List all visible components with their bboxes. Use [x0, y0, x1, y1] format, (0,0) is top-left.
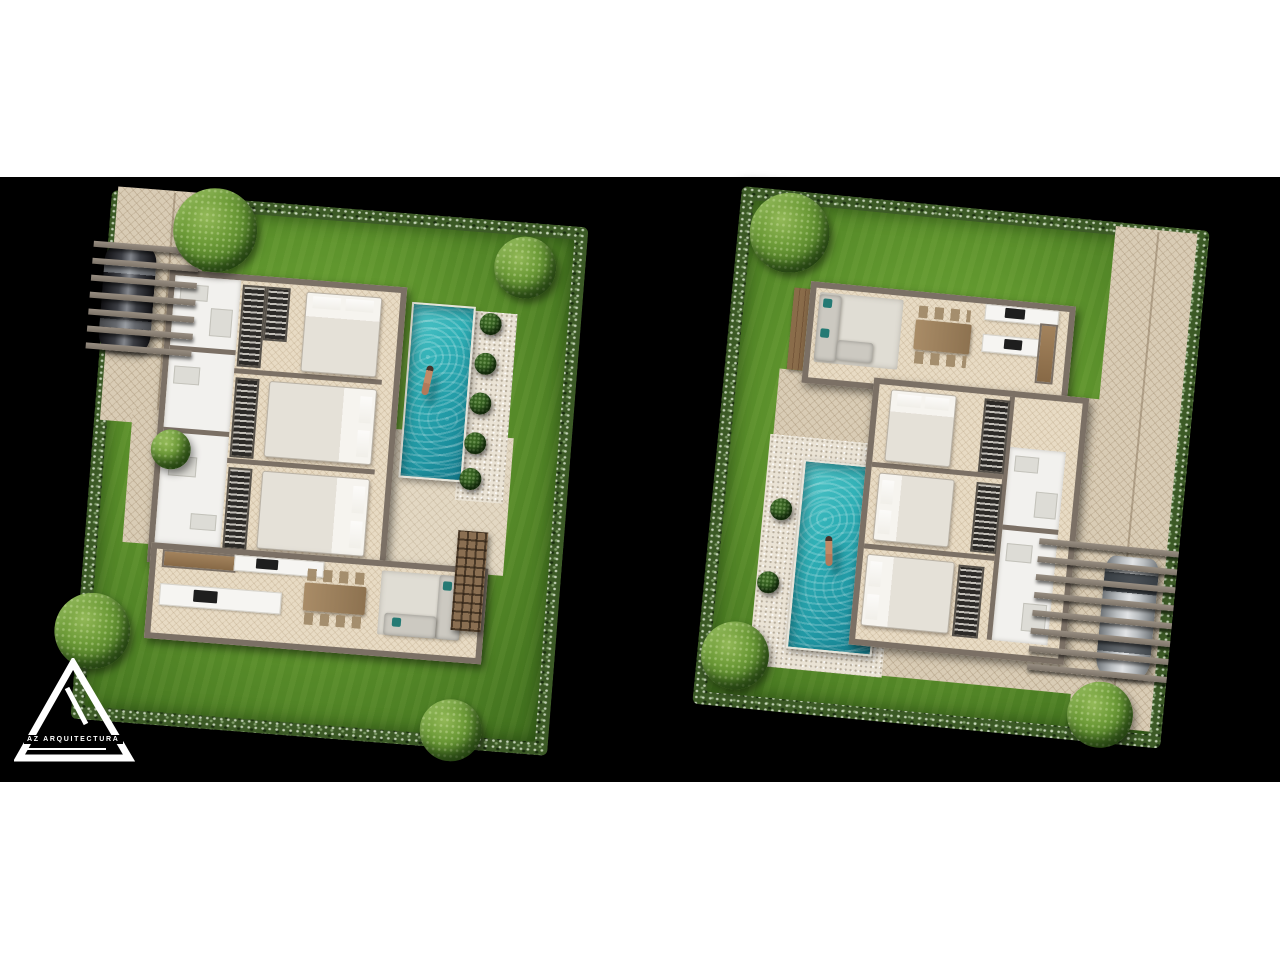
cooktop [256, 558, 279, 570]
sofa-cushion [392, 617, 402, 627]
site-plan-right [692, 186, 1210, 749]
wardrobe [229, 377, 259, 459]
dining-chairs [304, 612, 363, 629]
swimmer [825, 536, 832, 566]
kitchen-island [159, 583, 282, 615]
bath-fixture [1034, 492, 1058, 520]
dining-table [913, 319, 972, 354]
bottom-margin [0, 782, 1280, 960]
top-margin [0, 0, 1280, 177]
wardrobe [237, 285, 267, 369]
brand-logo [14, 658, 136, 768]
bed [264, 381, 378, 465]
dining-table [303, 582, 367, 615]
bed [256, 471, 370, 557]
sofa-cushion [820, 328, 830, 338]
wardrobe [263, 286, 291, 342]
render-canvas: AZ ARQUITECTURA [0, 0, 1280, 960]
kitchen-wood-counter [1034, 323, 1058, 384]
sofa-cushion [443, 581, 453, 591]
bed [873, 472, 955, 547]
wardrobe [952, 565, 985, 639]
wardrobe [222, 467, 252, 551]
kitchen-wood-counter [162, 549, 237, 573]
brand-underline [24, 748, 106, 750]
cooktop [1004, 339, 1023, 351]
sofa-chaise [383, 613, 437, 639]
brand-name: AZ ARQUITECTURA [24, 735, 123, 744]
bath-fixture [1005, 543, 1033, 563]
bed [860, 554, 954, 634]
dining-chairs [914, 351, 967, 368]
bed [884, 389, 957, 467]
bath-fixture [209, 308, 233, 338]
sofa-cushion [823, 298, 833, 308]
bath-fixture [1014, 455, 1039, 473]
cooktop [193, 590, 218, 604]
bedroom-wing [849, 378, 1090, 665]
sofa-chaise [836, 340, 874, 363]
bed [300, 292, 382, 378]
black-stage [0, 177, 1280, 782]
bath-fixture [190, 513, 217, 531]
bath-fixture [173, 365, 200, 385]
triangle-logo-mark [14, 658, 136, 768]
site-plan-left [70, 190, 588, 756]
cooktop [1005, 308, 1026, 320]
